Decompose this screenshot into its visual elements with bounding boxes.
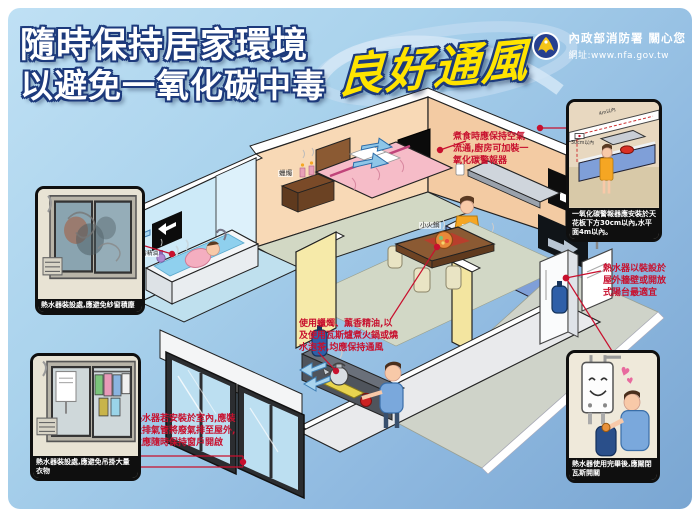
- title-line-1: 隨時保持居家環境: [20, 26, 326, 67]
- inset-hanging-clothes-scene: [33, 356, 138, 456]
- callout-keep-ventilated: 使用蠟燭、薰香精油,以及使用瓦斯爐煮火鍋或燒水泡茶,均應保持通風: [299, 319, 400, 355]
- chair: [446, 266, 461, 289]
- inset-co-alarm: 4m以內 30cm以內 一氧化碳警報器應安裝於天花板下方30cm以內,水平面4m…: [566, 99, 662, 242]
- inset-gas-off-scene: ♥ ♥: [569, 353, 657, 458]
- poster-title: 隨時保持居家環境 以避免一氧化碳中毒: [20, 26, 326, 106]
- callout-heater-outdoor: 熱水器以裝設於屋外牆壁或開放式陽台最適宜: [603, 264, 669, 300]
- nfa-emblem-icon: [531, 31, 561, 61]
- man-turning-gas-off: [621, 411, 649, 451]
- agency-block: 內政部消防署 關心您 網址:www.nfa.gov.tw: [531, 30, 686, 61]
- inset-screen-dust-caption: 熱水器裝設處,應避免紗窗積塵: [38, 299, 142, 312]
- callout-kitchen-air: 煮食時應保持空氣流通,廚房可加裝一氧化碳警報器: [453, 132, 533, 168]
- label-candle: 蠟燭: [278, 170, 293, 177]
- inset-gas-off: ♥ ♥ 熱水器使用完畢後,應關閉瓦斯開關: [566, 350, 660, 483]
- inset-co-alarm-scene: 4m以內 30cm以內: [569, 102, 659, 208]
- agency-name: 內政部消防署 關心您: [568, 30, 686, 46]
- label-30cm: 30cm以內: [571, 142, 594, 147]
- label-hot-pot: 小火鍋: [419, 222, 441, 229]
- title-line-2: 以避免一氧化碳中毒: [20, 67, 326, 106]
- poster-frame: 隨時保持居家環境 以避免一氧化碳中毒 良好通風 內政部消防署 關心您 網址:ww…: [0, 0, 700, 517]
- inset-co-alarm-caption: 一氧化碳警報器應安裝於天花板下方30cm以內,水平面4m以內。: [569, 208, 659, 239]
- inset-gas-off-caption: 熱水器使用完畢後,應關閉瓦斯開關: [569, 458, 657, 480]
- inset-screen-dust-scene: [38, 189, 142, 299]
- agency-url: 網址:www.nfa.gov.tw: [568, 48, 686, 61]
- inset-screen-dust: 熱水器裝設處,應避免紗窗積塵: [35, 186, 145, 315]
- inset-hanging-clothes-caption: 熱水器裝設處,應避免吊掛大量衣物: [33, 456, 138, 478]
- smiling-heater: [582, 362, 613, 412]
- callout-heater-indoor: 熱水器若安裝於室內,應裝設排氣管將廢氣排至屋外,並應隨時保持窗戶開啟: [133, 414, 243, 450]
- inset-hanging-clothes: 熱水器裝設處,應避免吊掛大量衣物: [30, 353, 141, 481]
- gas-valve-knob: [602, 423, 610, 431]
